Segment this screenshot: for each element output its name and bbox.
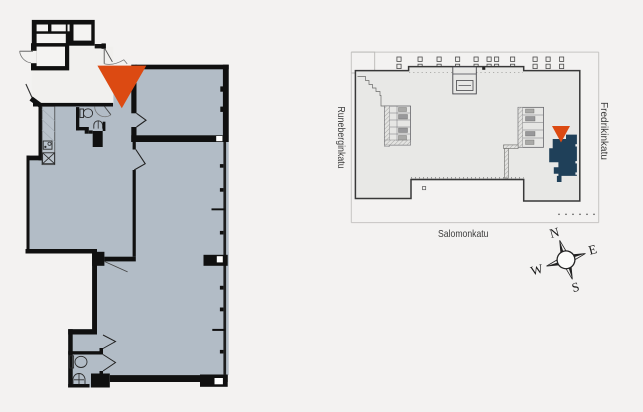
svg-text:Salomonkatu: Salomonkatu bbox=[438, 228, 489, 240]
svg-text:Runeberginkatu: Runeberginkatu bbox=[335, 106, 346, 168]
svg-text:Fredrikinkatu: Fredrikinkatu bbox=[598, 102, 609, 160]
